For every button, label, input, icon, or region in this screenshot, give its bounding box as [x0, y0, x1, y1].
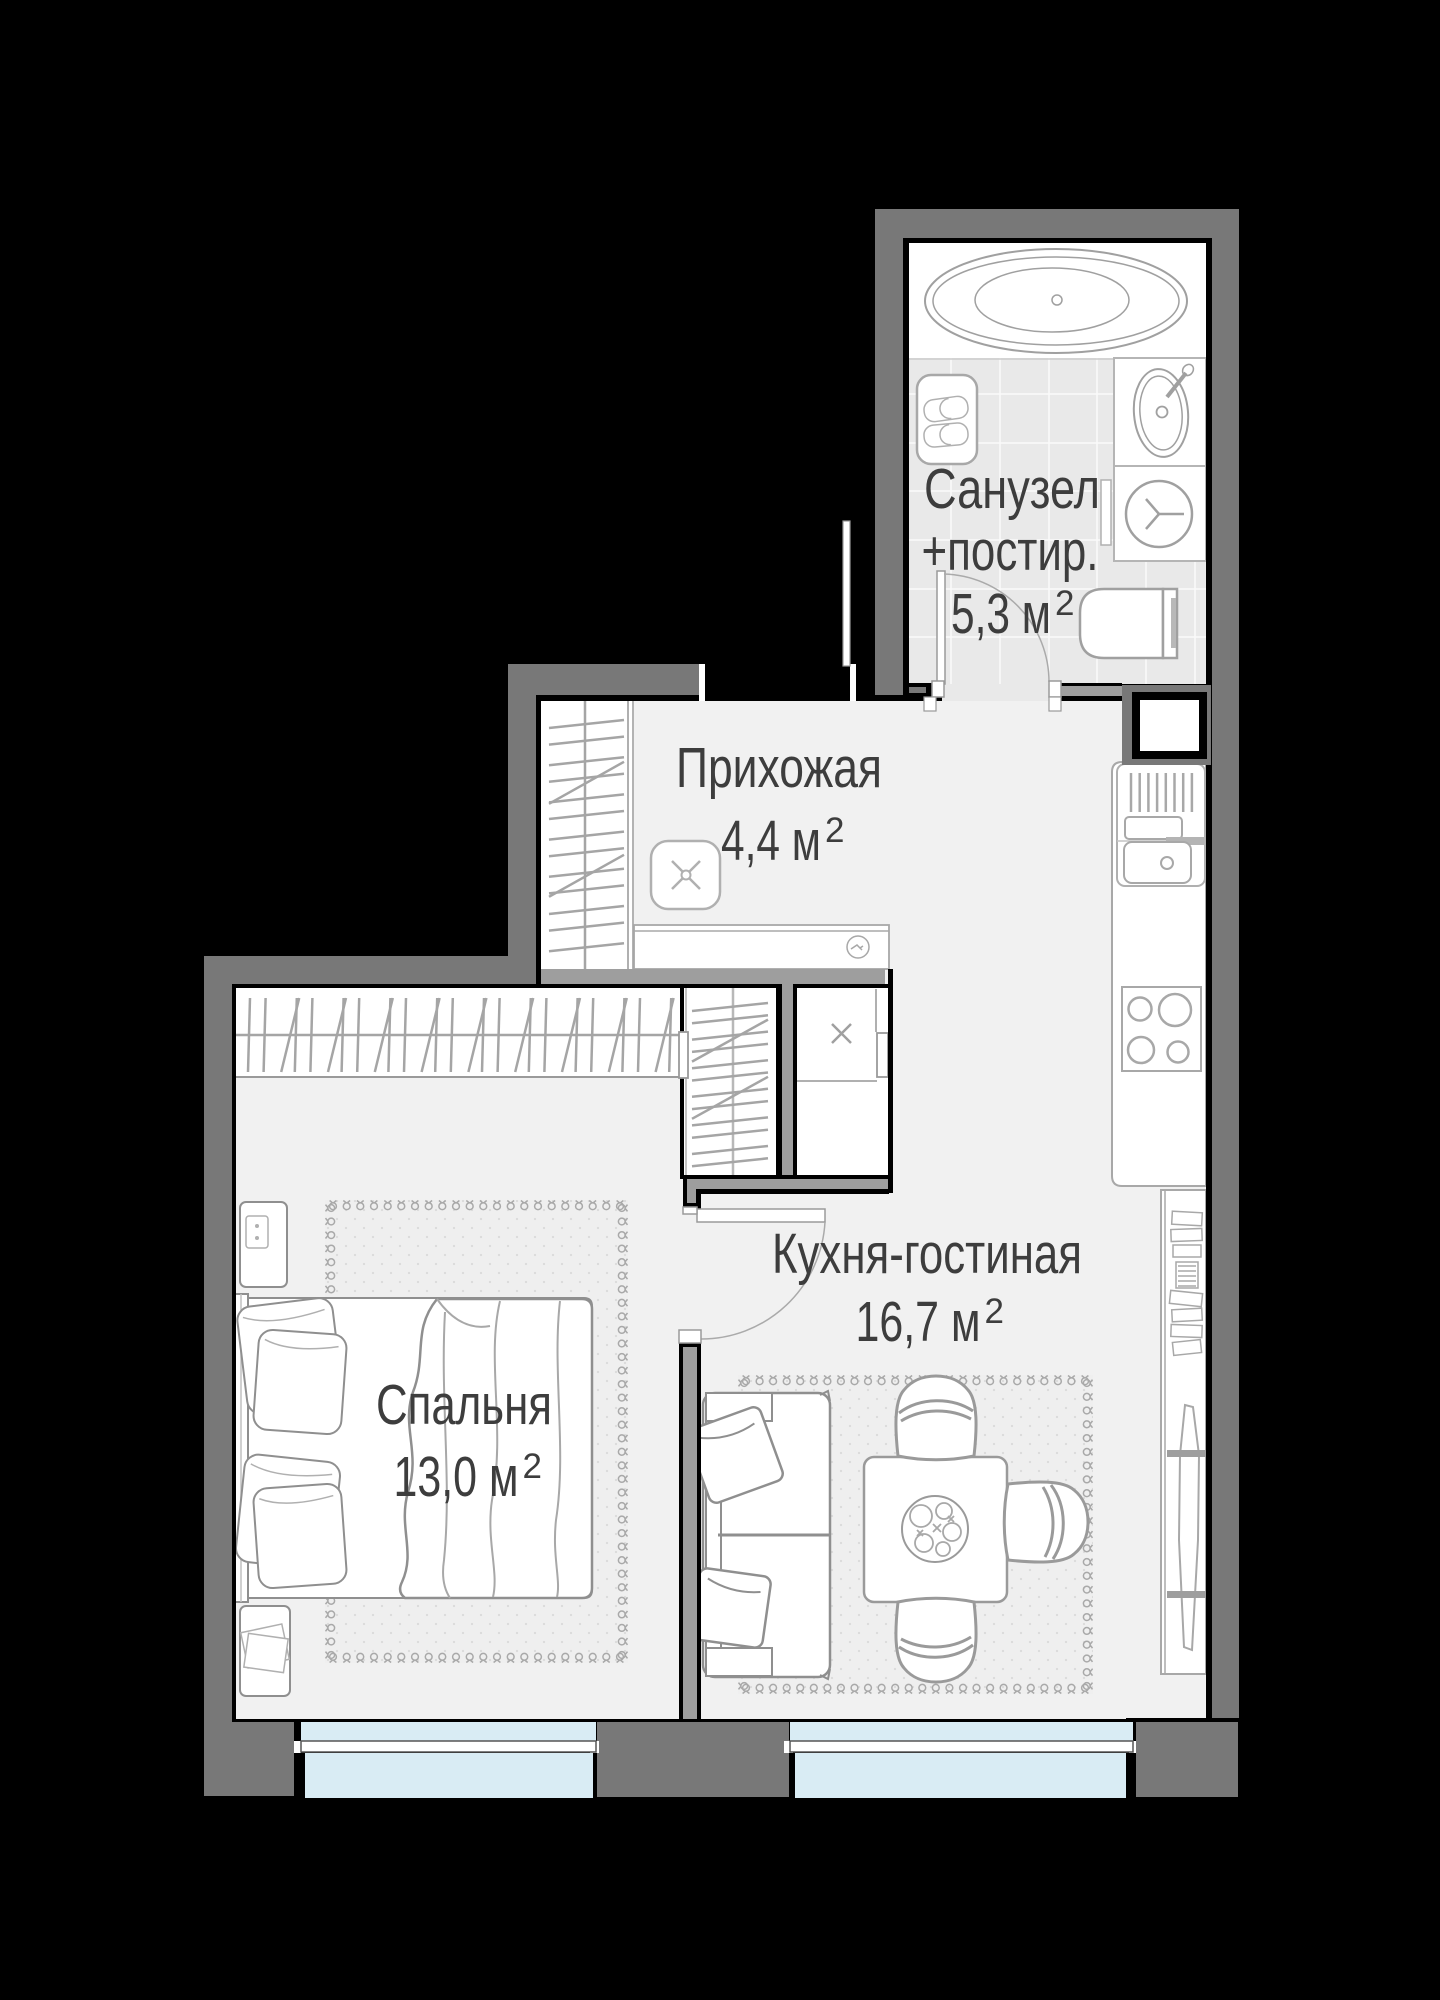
svg-text:2: 2	[825, 811, 844, 850]
svg-text:13,0 м: 13,0 м	[394, 1445, 519, 1509]
svg-text:Прихожая: Прихожая	[676, 736, 882, 800]
svg-text:Кухня-гостиная: Кухня-гостиная	[772, 1222, 1082, 1286]
svg-text:2: 2	[523, 1447, 542, 1486]
svg-text:4,4 м: 4,4 м	[721, 809, 821, 873]
svg-text:2: 2	[1055, 584, 1074, 623]
svg-text:16,7 м: 16,7 м	[856, 1290, 981, 1354]
svg-text:Спальня: Спальня	[376, 1373, 552, 1437]
svg-text:2: 2	[985, 1292, 1004, 1331]
svg-text:Санузел: Санузел	[924, 457, 1100, 521]
svg-text:5,3 м: 5,3 м	[951, 582, 1051, 646]
svg-text:+постир.: +постир.	[922, 519, 1099, 583]
